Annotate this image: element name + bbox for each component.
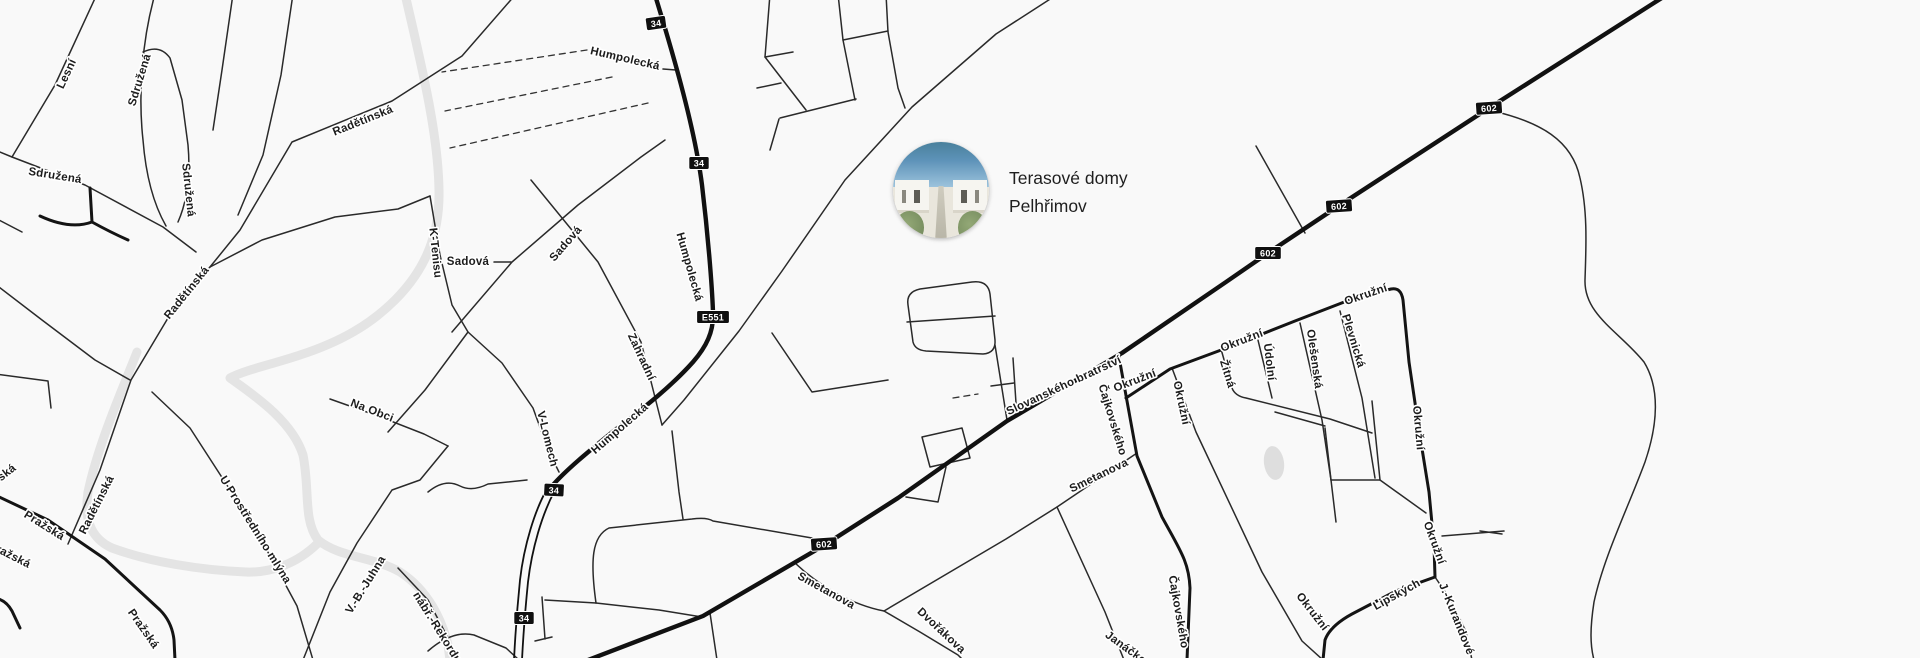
- route-shield: 34: [514, 612, 534, 625]
- street-label: Okružní: [1219, 327, 1265, 354]
- svg-text:34: 34: [519, 614, 530, 624]
- street-label: Okružní: [1421, 520, 1448, 566]
- poi-title-line1: Terasové domy: [1009, 164, 1128, 192]
- route-shield: 602: [810, 537, 837, 552]
- street-label: K-Tenisu: [426, 227, 443, 278]
- street-label: Čajkovského: [1166, 574, 1192, 649]
- street-label: Plevnická: [1339, 313, 1367, 370]
- svg-text:602: 602: [1481, 103, 1498, 114]
- street-label: Okružní: [1410, 405, 1426, 451]
- street-label: ražská: [0, 543, 33, 571]
- street-label: Sadová: [447, 256, 490, 268]
- route-shield: 602: [1325, 199, 1352, 214]
- street-label: Sadová: [548, 224, 585, 264]
- svg-text:602: 602: [1260, 249, 1276, 259]
- poi-title[interactable]: Terasové domy Pelhřimov: [1009, 164, 1128, 220]
- street-label: Pražská: [125, 607, 161, 651]
- route-shield: 34: [689, 157, 709, 170]
- street-label: Lesní: [55, 57, 79, 91]
- svg-text:602: 602: [1331, 201, 1348, 212]
- poi-photo-building-left: [895, 180, 930, 213]
- poi-photo-window: [914, 190, 920, 203]
- street-label: Humpolecká: [589, 45, 661, 73]
- street-label: Lipských: [1371, 577, 1422, 613]
- street-label: Radětínská: [162, 264, 212, 321]
- poi-photo-building-right: [953, 180, 988, 213]
- poi-marker-terasove-domy[interactable]: [893, 142, 989, 238]
- map-canvas[interactable]: LesníSdruženáSdruženáSdruženáRadětínskáR…: [0, 0, 1920, 658]
- svg-text:34: 34: [650, 18, 662, 29]
- street-label: Sdružená: [126, 52, 153, 107]
- street-label: V-Lomech: [534, 410, 559, 468]
- secondary-roads: [0, 188, 1435, 658]
- street-label: Radětínská: [331, 103, 395, 138]
- route-shield: 602: [1255, 247, 1282, 260]
- route-shield: 34: [645, 15, 667, 31]
- street-label: Okružní: [1294, 591, 1331, 634]
- svg-text:E551: E551: [702, 313, 724, 323]
- street-label: Humpolecká: [589, 401, 651, 457]
- street-label: Olešenská: [1304, 329, 1324, 390]
- street-label: Zahradní: [625, 332, 657, 383]
- street-label: Smetanova: [795, 570, 857, 612]
- street-label: Okružní: [1343, 282, 1390, 308]
- street-label: Smetanova: [1068, 457, 1131, 496]
- street-label: Dvořákova: [915, 606, 968, 657]
- route-shields: 34343434E551602602602602: [514, 15, 1503, 624]
- street-label: nábř.-Rekordu: [410, 590, 464, 658]
- route-shield: 34: [543, 483, 564, 497]
- poi-photo-window: [902, 190, 906, 203]
- street-label: Pražská: [22, 509, 67, 543]
- street-label: Žitná: [1217, 358, 1238, 390]
- poi-photo-bush-left: [895, 211, 924, 238]
- street-label: Sdružená: [28, 166, 83, 186]
- svg-text:602: 602: [816, 539, 833, 550]
- street-label: Janáčkova: [1103, 629, 1160, 658]
- street-label: Sdružená: [179, 163, 197, 218]
- highway-roads: [514, 0, 1668, 658]
- route-shield: 602: [1475, 101, 1502, 116]
- street-label: ská: [0, 462, 19, 484]
- street-label: Na Obci: [349, 397, 396, 424]
- street-label: Okružní: [1170, 380, 1191, 427]
- poi-title-line2: Pelhřimov: [1009, 192, 1128, 220]
- pond: [1262, 445, 1287, 481]
- route-shield: E551: [697, 311, 730, 324]
- street-label: Údolní: [1261, 343, 1279, 382]
- street-label: J.-Kurandové: [1436, 581, 1476, 656]
- svg-text:34: 34: [548, 485, 559, 496]
- street-label: Humpolecká: [673, 231, 704, 303]
- poi-photo-window: [961, 190, 967, 203]
- poi-photo-bush-right: [958, 211, 987, 238]
- svg-text:34: 34: [694, 159, 705, 169]
- map-viewport[interactable]: LesníSdruženáSdruženáSdruženáRadětínskáR…: [0, 0, 1920, 658]
- poi-photo-window: [975, 190, 979, 203]
